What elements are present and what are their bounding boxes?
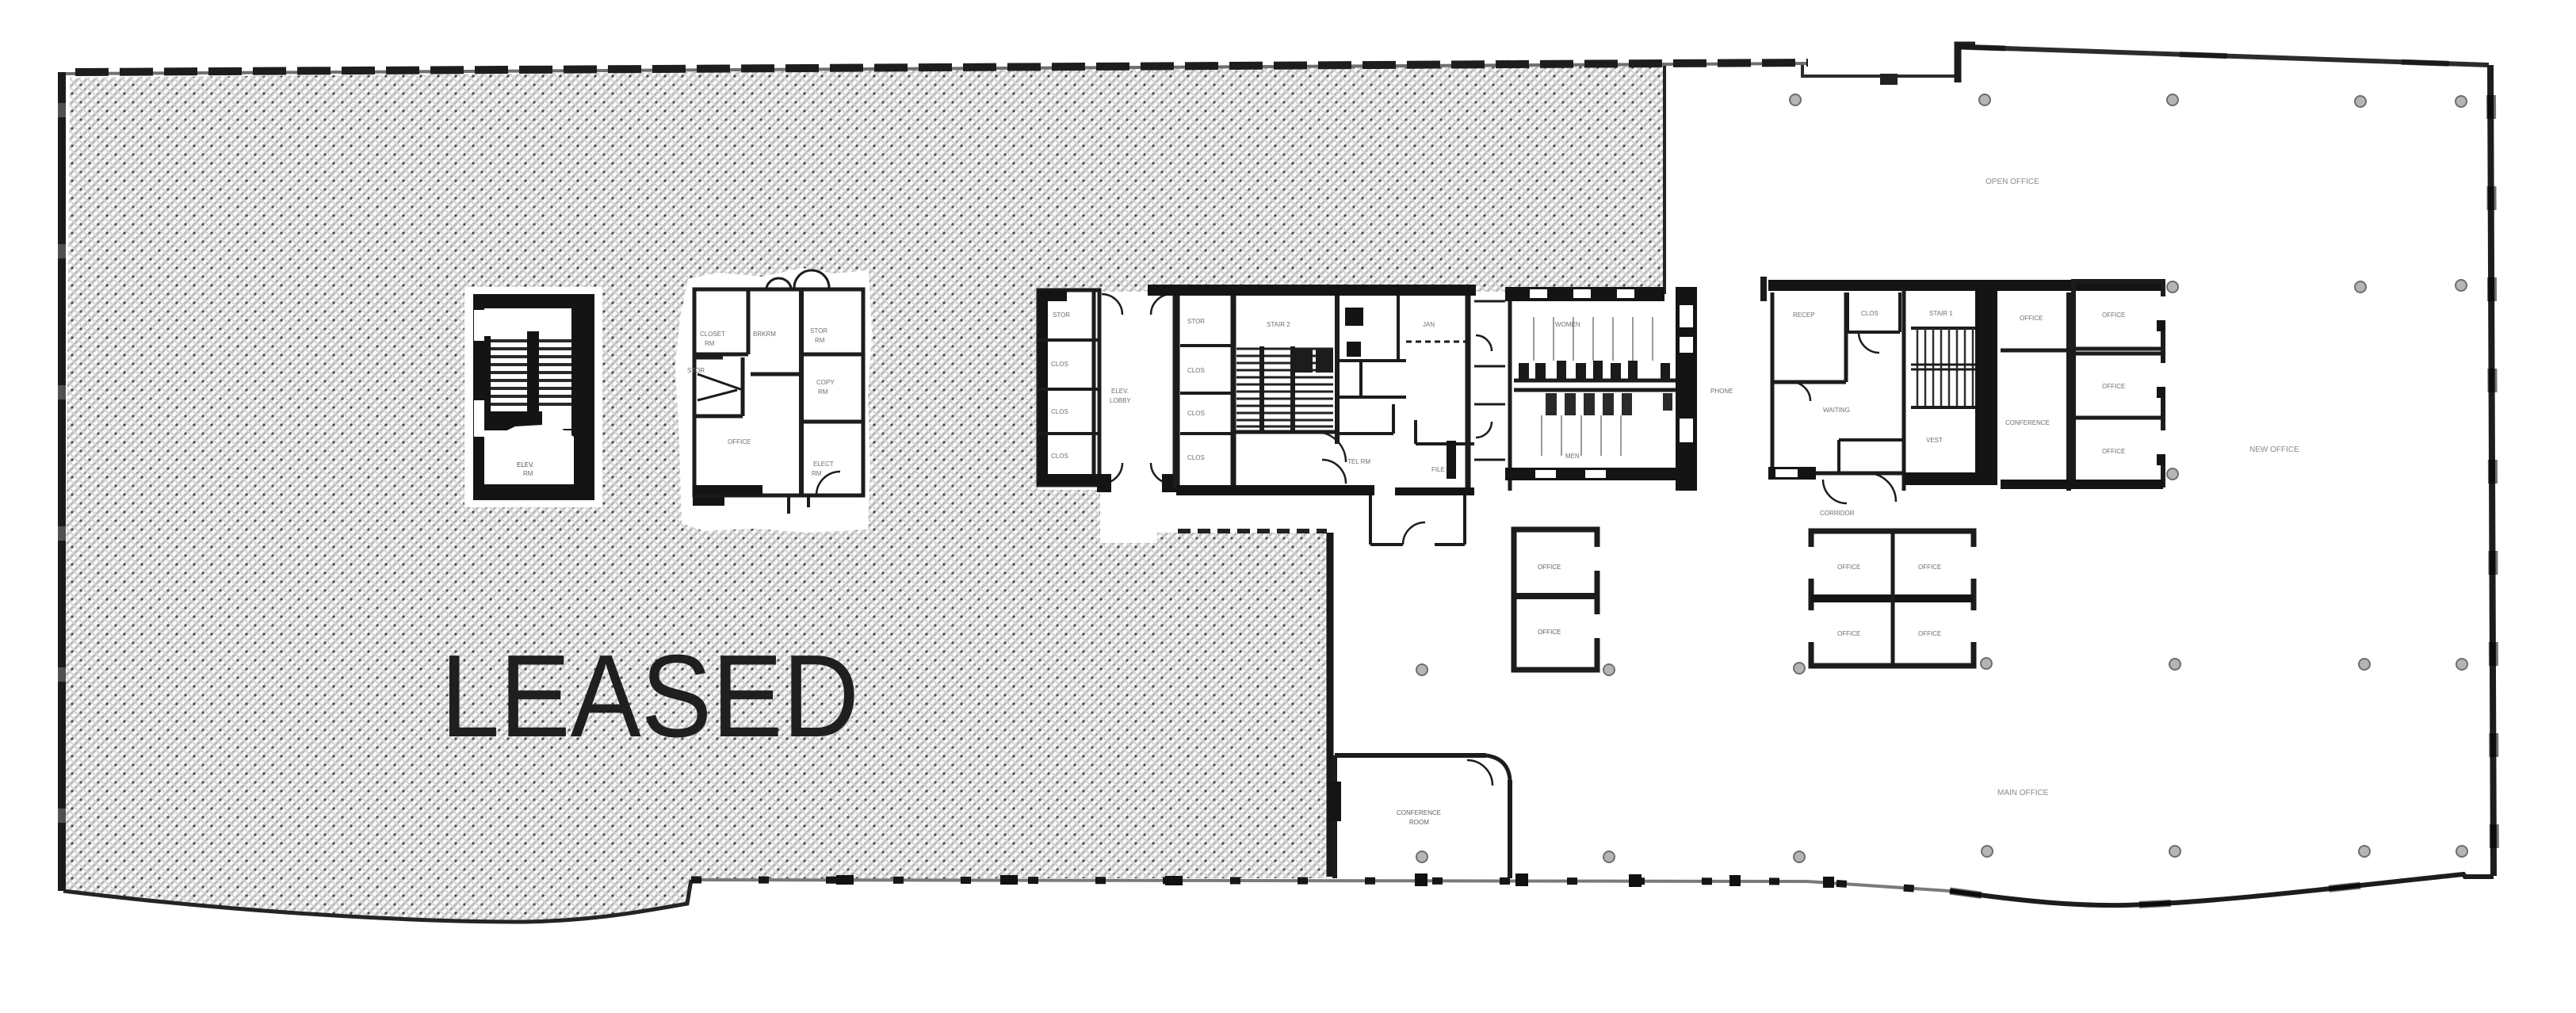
- svg-text:RECEP: RECEP: [1793, 312, 1815, 319]
- svg-text:OFFICE: OFFICE: [2102, 312, 2125, 319]
- svg-text:CLOS: CLOS: [1187, 454, 1205, 461]
- svg-text:OFFICE: OFFICE: [2102, 383, 2125, 390]
- svg-text:MAIN OFFICE: MAIN OFFICE: [1997, 789, 2049, 797]
- svg-text:OFFICE: OFFICE: [1918, 630, 1941, 637]
- svg-text:WAITING: WAITING: [1823, 407, 1850, 414]
- svg-text:WOMEN: WOMEN: [1555, 321, 1580, 328]
- svg-text:RM: RM: [705, 340, 715, 347]
- svg-text:TEL RM: TEL RM: [1347, 458, 1370, 465]
- svg-text:RM: RM: [815, 337, 825, 344]
- svg-text:STOR: STOR: [1053, 312, 1070, 319]
- svg-text:RM: RM: [812, 470, 822, 477]
- svg-text:CORRIDOR: CORRIDOR: [1820, 510, 1855, 517]
- svg-text:JAN: JAN: [1423, 321, 1435, 328]
- svg-text:CLOS: CLOS: [1051, 408, 1068, 415]
- svg-text:MEN: MEN: [1565, 453, 1580, 460]
- svg-text:CLOS: CLOS: [1187, 367, 1205, 374]
- svg-text:CLOS: CLOS: [1051, 361, 1068, 368]
- svg-text:STOR: STOR: [687, 367, 705, 374]
- svg-text:CONFERENCE: CONFERENCE: [2005, 419, 2050, 426]
- svg-text:LEASED: LEASED: [441, 631, 859, 762]
- svg-text:OFFICE: OFFICE: [1918, 564, 1941, 571]
- svg-text:LOBBY: LOBBY: [1110, 397, 1131, 404]
- svg-text:BRKRM: BRKRM: [753, 331, 776, 338]
- svg-text:CLOS: CLOS: [1861, 310, 1878, 317]
- svg-text:PHONE: PHONE: [1710, 388, 1733, 395]
- svg-text:OFFICE: OFFICE: [1538, 629, 1561, 636]
- svg-text:OFFICE: OFFICE: [2020, 315, 2043, 322]
- svg-text:COPY: COPY: [816, 379, 835, 386]
- svg-text:VEST: VEST: [1926, 437, 1943, 444]
- svg-text:ROOM: ROOM: [1409, 819, 1429, 826]
- svg-text:NEW OFFICE: NEW OFFICE: [2249, 445, 2299, 454]
- svg-text:ELEV.: ELEV.: [1111, 388, 1129, 395]
- svg-text:RM: RM: [818, 388, 828, 396]
- svg-text:RM: RM: [523, 470, 533, 477]
- svg-text:CLOS: CLOS: [1187, 410, 1205, 417]
- svg-text:OFFICE: OFFICE: [1837, 630, 1860, 637]
- svg-text:OFFICE: OFFICE: [2102, 448, 2125, 455]
- svg-text:CONFERENCE: CONFERENCE: [1397, 809, 1441, 816]
- svg-text:STOR: STOR: [810, 327, 827, 334]
- svg-text:OFFICE: OFFICE: [1837, 564, 1860, 571]
- svg-text:OPEN OFFICE: OPEN OFFICE: [1986, 178, 2039, 186]
- svg-text:OFFICE: OFFICE: [728, 438, 751, 445]
- svg-text:ELECT: ELECT: [813, 461, 834, 468]
- svg-text:CLOS: CLOS: [1051, 453, 1068, 460]
- svg-text:STAIR 1: STAIR 1: [1929, 310, 1953, 317]
- svg-text:STOR: STOR: [1187, 318, 1205, 325]
- svg-text:FILE: FILE: [1431, 466, 1445, 473]
- svg-text:OFFICE: OFFICE: [1538, 564, 1561, 571]
- svg-text:ELEV.: ELEV.: [517, 461, 534, 468]
- svg-text:STAIR 2: STAIR 2: [1267, 321, 1290, 328]
- svg-text:CLOSET: CLOSET: [700, 331, 725, 338]
